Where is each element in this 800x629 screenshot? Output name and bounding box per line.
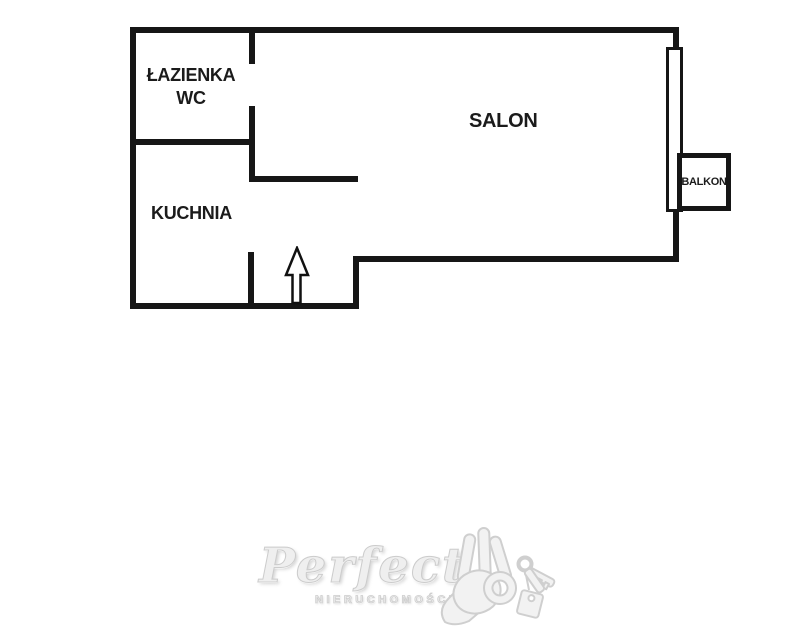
bathroom-label-line1: ŁAZIENKA xyxy=(120,64,262,87)
wall-step-vertical xyxy=(353,256,359,309)
floorplan-canvas: BALKON ŁAZIENKA WC KUCHNIA SALON Perfect… xyxy=(0,0,800,629)
kitchen-label: KUCHNIA xyxy=(151,203,232,224)
wall-top xyxy=(130,27,679,33)
balcony-label: BALKON xyxy=(681,176,726,188)
wall-kitchen-hall-stub xyxy=(248,252,254,309)
ok-hand-with-keys-icon xyxy=(439,526,561,626)
watermark-logo: Perfect NIERUCHOMOŚCI xyxy=(253,528,565,626)
balcony-room: BALKON xyxy=(677,153,731,211)
wall-hall-stub xyxy=(249,176,358,182)
wall-bathroom-upper xyxy=(249,27,255,64)
watermark-subtitle-text: NIERUCHOMOŚCI xyxy=(315,594,455,606)
bathroom-label: ŁAZIENKA WC xyxy=(120,64,262,110)
wall-bathroom-kitchen-divider xyxy=(130,139,255,145)
watermark-brand-text: Perfect xyxy=(259,542,466,590)
entrance-arrow-icon xyxy=(281,246,315,306)
living-room-label: SALON xyxy=(469,110,538,133)
bathroom-label-line2: WC xyxy=(120,87,262,110)
wall-right-lower xyxy=(673,208,679,262)
wall-bottom-hall xyxy=(130,303,359,309)
wall-bottom-salon xyxy=(353,256,679,262)
